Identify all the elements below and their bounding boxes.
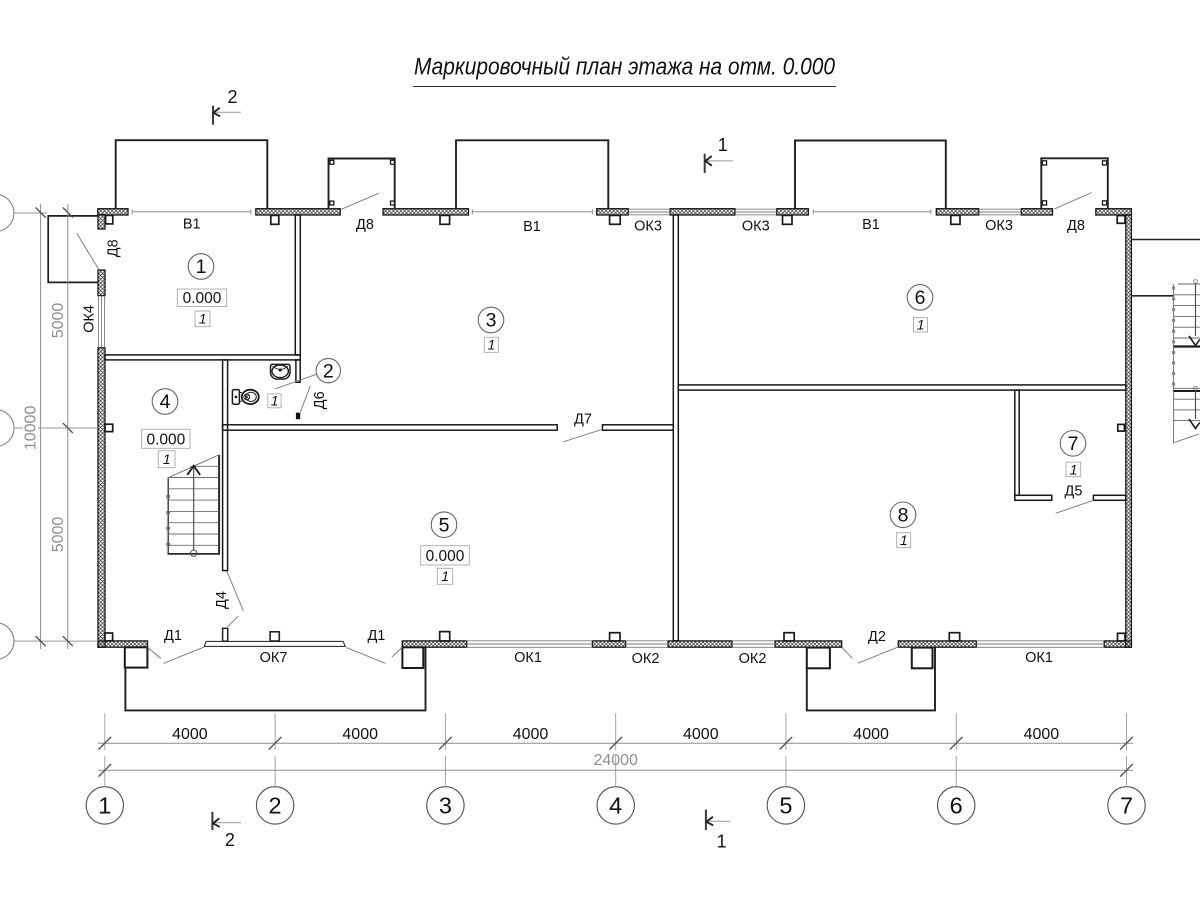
svg-text:4: 4 — [609, 792, 622, 818]
svg-text:Д8: Д8 — [1067, 218, 1085, 234]
svg-text:Д1: Д1 — [367, 628, 385, 644]
svg-text:ОК3: ОК3 — [985, 218, 1013, 234]
svg-text:4000: 4000 — [853, 726, 889, 743]
svg-text:6: 6 — [915, 287, 926, 309]
svg-text:ОК2: ОК2 — [739, 651, 767, 667]
svg-text:ОК2: ОК2 — [632, 651, 660, 667]
svg-text:1: 1 — [196, 256, 207, 278]
svg-text:Маркировочный план этажа на от: Маркировочный план этажа на отм. 0.000 — [414, 54, 835, 81]
svg-text:1: 1 — [718, 135, 728, 155]
svg-text:1: 1 — [199, 311, 207, 327]
svg-text:4000: 4000 — [172, 726, 208, 743]
svg-text:1: 1 — [1070, 461, 1078, 477]
svg-text:1: 1 — [900, 532, 908, 548]
svg-text:2: 2 — [269, 792, 282, 818]
svg-text:ОК1: ОК1 — [514, 650, 542, 666]
svg-text:Д1: Д1 — [164, 628, 182, 644]
svg-text:0.000: 0.000 — [426, 548, 465, 565]
svg-text:24000: 24000 — [593, 752, 638, 769]
svg-text:5: 5 — [779, 792, 792, 818]
svg-text:7: 7 — [1120, 792, 1133, 818]
svg-text:В1: В1 — [523, 219, 541, 235]
svg-text:5000: 5000 — [50, 517, 67, 553]
svg-text:1: 1 — [271, 393, 279, 409]
svg-text:2: 2 — [227, 87, 237, 107]
svg-text:1: 1 — [717, 832, 727, 852]
svg-text:ОК4: ОК4 — [81, 305, 97, 333]
svg-text:ОК7: ОК7 — [260, 650, 288, 666]
svg-text:3: 3 — [486, 310, 497, 332]
svg-text:4000: 4000 — [513, 726, 549, 743]
svg-text:2: 2 — [225, 830, 235, 850]
svg-text:4000: 4000 — [683, 726, 719, 743]
svg-text:Д5: Д5 — [1065, 483, 1083, 499]
svg-text:1: 1 — [163, 451, 171, 467]
svg-text:1: 1 — [98, 792, 111, 818]
svg-text:3: 3 — [439, 792, 452, 818]
svg-text:8: 8 — [898, 505, 909, 527]
svg-text:4000: 4000 — [1024, 726, 1060, 743]
svg-text:10000: 10000 — [23, 406, 40, 451]
svg-text:Д2: Д2 — [868, 629, 886, 645]
svg-text:5: 5 — [439, 514, 450, 536]
svg-text:Д6: Д6 — [312, 391, 328, 409]
svg-text:2: 2 — [323, 360, 334, 382]
svg-text:7: 7 — [1068, 433, 1079, 455]
svg-text:ОК3: ОК3 — [742, 219, 770, 235]
svg-text:1: 1 — [488, 337, 496, 353]
svg-text:4: 4 — [160, 391, 171, 413]
svg-text:0.000: 0.000 — [183, 290, 222, 307]
svg-text:Д7: Д7 — [574, 411, 592, 427]
svg-text:В1: В1 — [183, 217, 201, 233]
svg-text:4000: 4000 — [342, 726, 378, 743]
svg-text:5000: 5000 — [50, 303, 67, 339]
svg-text:Д8: Д8 — [106, 239, 122, 257]
svg-text:1: 1 — [441, 568, 449, 584]
svg-text:Д4: Д4 — [214, 591, 230, 609]
svg-text:1: 1 — [917, 317, 925, 333]
svg-text:6: 6 — [950, 792, 963, 818]
svg-text:ОК1: ОК1 — [1025, 650, 1053, 666]
svg-text:В1: В1 — [862, 217, 880, 233]
svg-text:0.000: 0.000 — [147, 432, 186, 449]
svg-text:ОК3: ОК3 — [634, 219, 662, 235]
svg-text:Д8: Д8 — [356, 217, 374, 233]
